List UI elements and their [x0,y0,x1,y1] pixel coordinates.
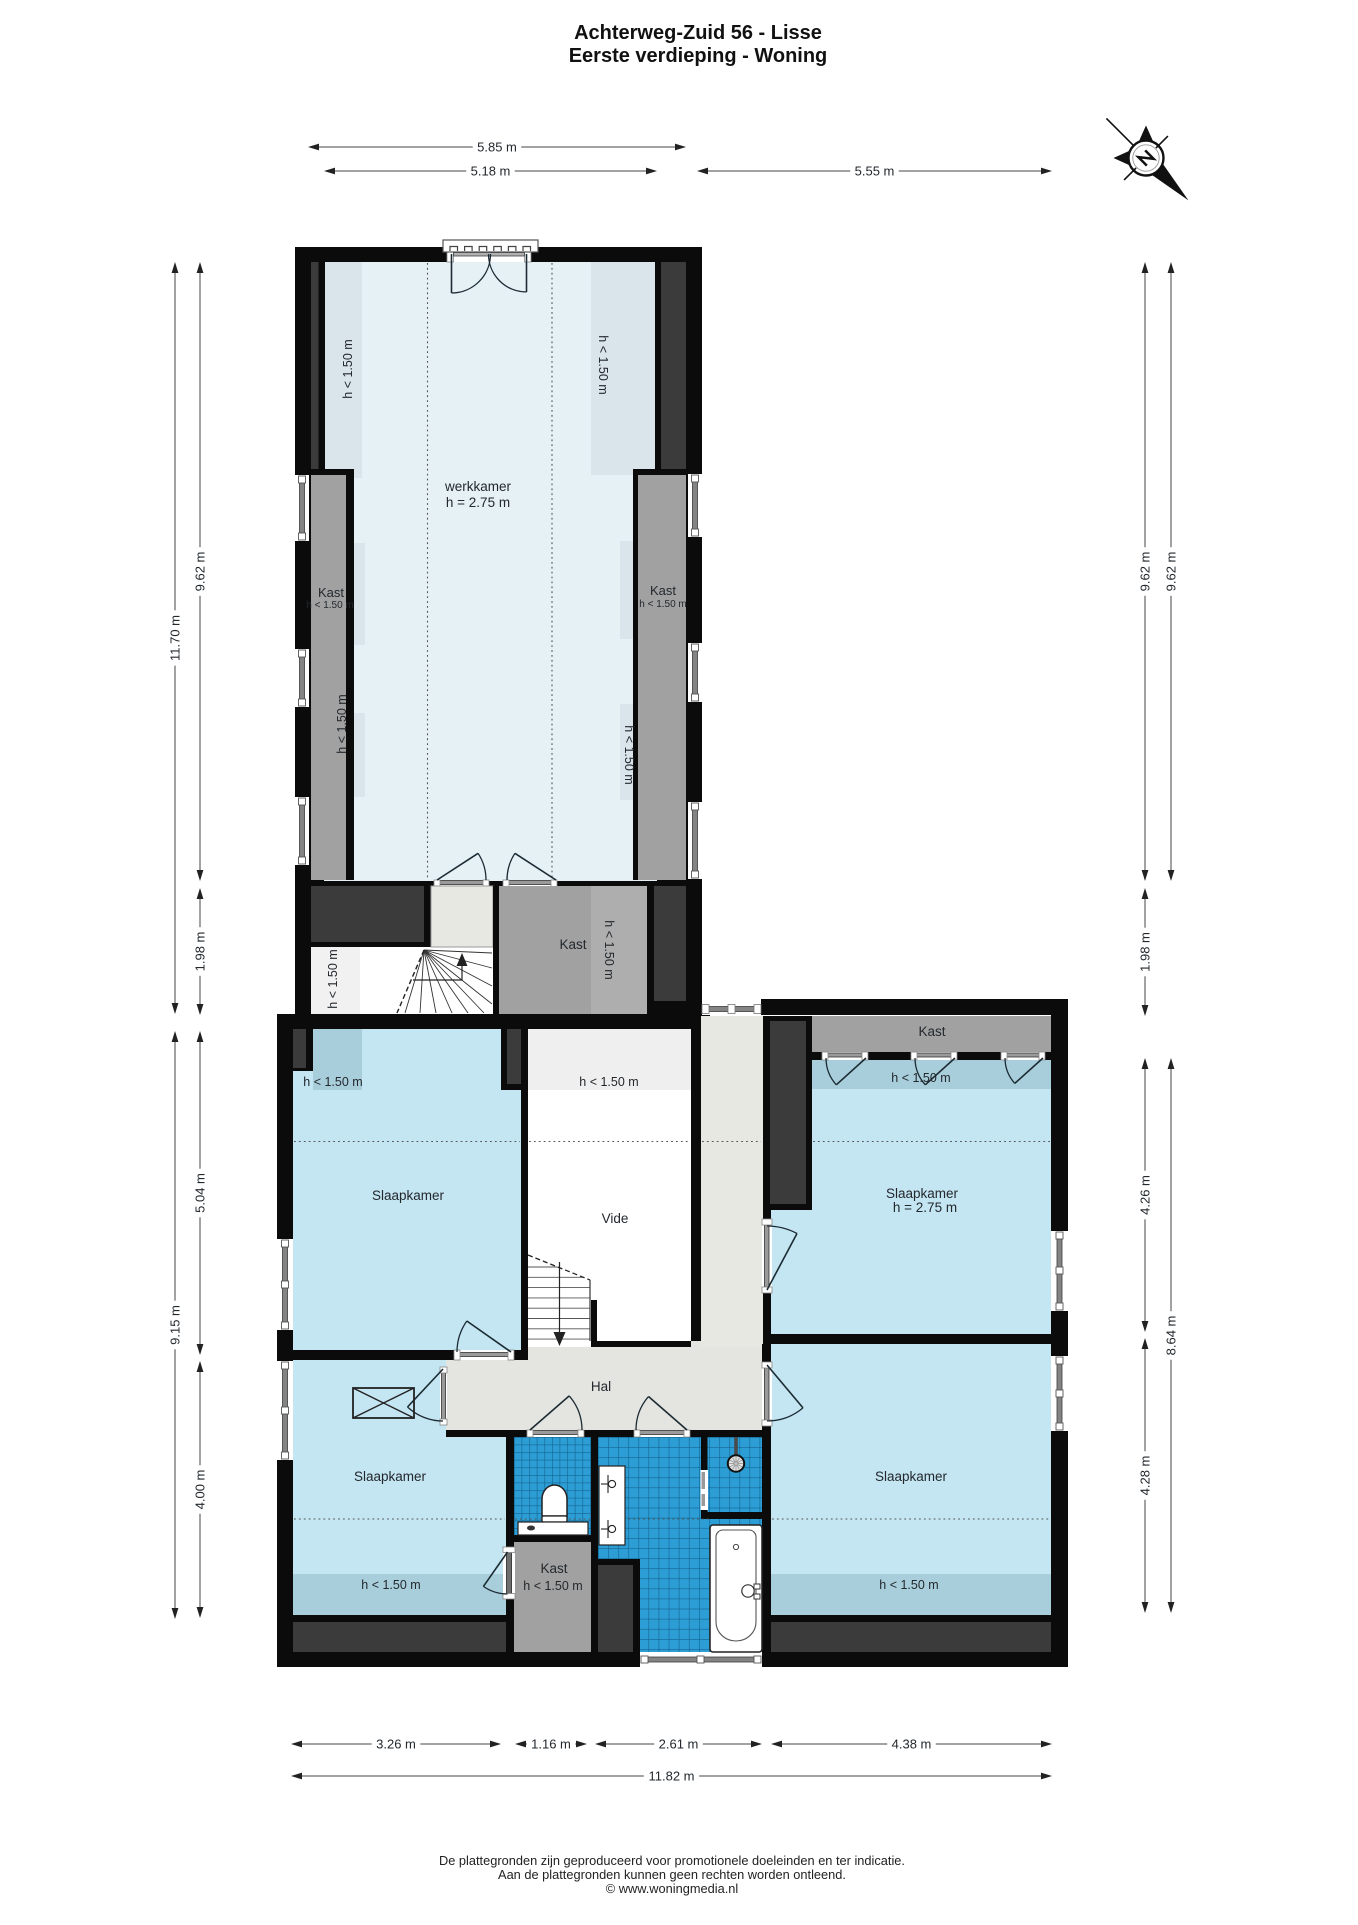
svg-text:h = 2.75 m: h = 2.75 m [446,495,510,510]
svg-text:Kast: Kast [540,1561,567,1576]
svg-text:1.98 m: 1.98 m [1138,932,1153,972]
svg-text:5.04 m: 5.04 m [193,1173,208,1213]
svg-text:h < 1.50 m: h < 1.50 m [303,1075,362,1089]
svg-text:4.28 m: 4.28 m [1138,1456,1153,1496]
svg-text:9.62 m: 9.62 m [1164,552,1179,592]
svg-text:h < 1.50 m: h < 1.50 m [523,1579,582,1593]
svg-text:5.18 m: 5.18 m [471,164,511,179]
svg-text:h < 1.50 m: h < 1.50 m [891,1071,950,1085]
svg-text:1.98 m: 1.98 m [193,932,208,972]
svg-text:werkkamer: werkkamer [444,479,512,494]
svg-text:1.16 m: 1.16 m [531,1737,571,1752]
svg-text:2.61 m: 2.61 m [659,1737,699,1752]
svg-text:4.26 m: 4.26 m [1138,1175,1153,1215]
svg-text:h < 1.50 m: h < 1.50 m [596,335,610,394]
svg-text:h < 1.50 m: h < 1.50 m [306,600,354,611]
svg-text:Slaapkamer: Slaapkamer [875,1469,948,1484]
svg-text:Kast: Kast [650,583,676,598]
svg-text:© www.woningmedia.nl: © www.woningmedia.nl [606,1881,738,1896]
svg-text:5.85 m: 5.85 m [477,140,517,155]
svg-text:h < 1.50 m: h < 1.50 m [361,1578,420,1592]
svg-text:5.55 m: 5.55 m [855,164,895,179]
svg-text:Kast: Kast [918,1024,945,1039]
svg-text:Kast: Kast [559,937,586,952]
svg-text:h < 1.50 m: h < 1.50 m [579,1075,638,1089]
svg-text:h = 2.75 m: h = 2.75 m [893,1200,957,1215]
svg-text:9.62 m: 9.62 m [193,552,208,592]
svg-text:Eerste verdieping - Woning: Eerste verdieping - Woning [569,45,828,67]
svg-text:Achterweg-Zuid 56 - Lisse: Achterweg-Zuid 56 - Lisse [574,22,822,44]
svg-text:h < 1.50 m: h < 1.50 m [335,694,349,753]
svg-text:4.38 m: 4.38 m [892,1737,932,1752]
svg-text:h < 1.50 m: h < 1.50 m [639,599,687,610]
svg-text:9.15 m: 9.15 m [168,1305,183,1345]
svg-text:h < 1.50 m: h < 1.50 m [326,949,340,1008]
svg-text:h < 1.50 m: h < 1.50 m [602,920,616,979]
svg-text:Vide: Vide [602,1211,629,1226]
svg-text:De plattegronden zijn geproduc: De plattegronden zijn geproduceerd voor … [439,1853,905,1868]
svg-text:11.70 m: 11.70 m [168,615,183,661]
svg-text:h < 1.50 m: h < 1.50 m [341,339,355,398]
svg-text:3.26 m: 3.26 m [376,1737,416,1752]
svg-text:11.82 m: 11.82 m [648,1769,694,1784]
svg-text:Aan de plattegronden kunnen ge: Aan de plattegronden kunnen geen rechten… [498,1867,846,1882]
svg-text:Slaapkamer: Slaapkamer [354,1469,427,1484]
svg-text:8.64 m: 8.64 m [1164,1316,1179,1356]
svg-text:Kast: Kast [318,585,344,600]
svg-text:9.62 m: 9.62 m [1138,552,1153,592]
svg-text:Slaapkamer: Slaapkamer [372,1188,445,1203]
svg-text:h < 1.50 m: h < 1.50 m [622,725,636,784]
svg-text:Hal: Hal [591,1379,611,1394]
svg-text:h < 1.50 m: h < 1.50 m [879,1578,938,1592]
svg-text:Slaapkamer: Slaapkamer [886,1186,959,1201]
svg-text:4.00 m: 4.00 m [193,1470,208,1510]
